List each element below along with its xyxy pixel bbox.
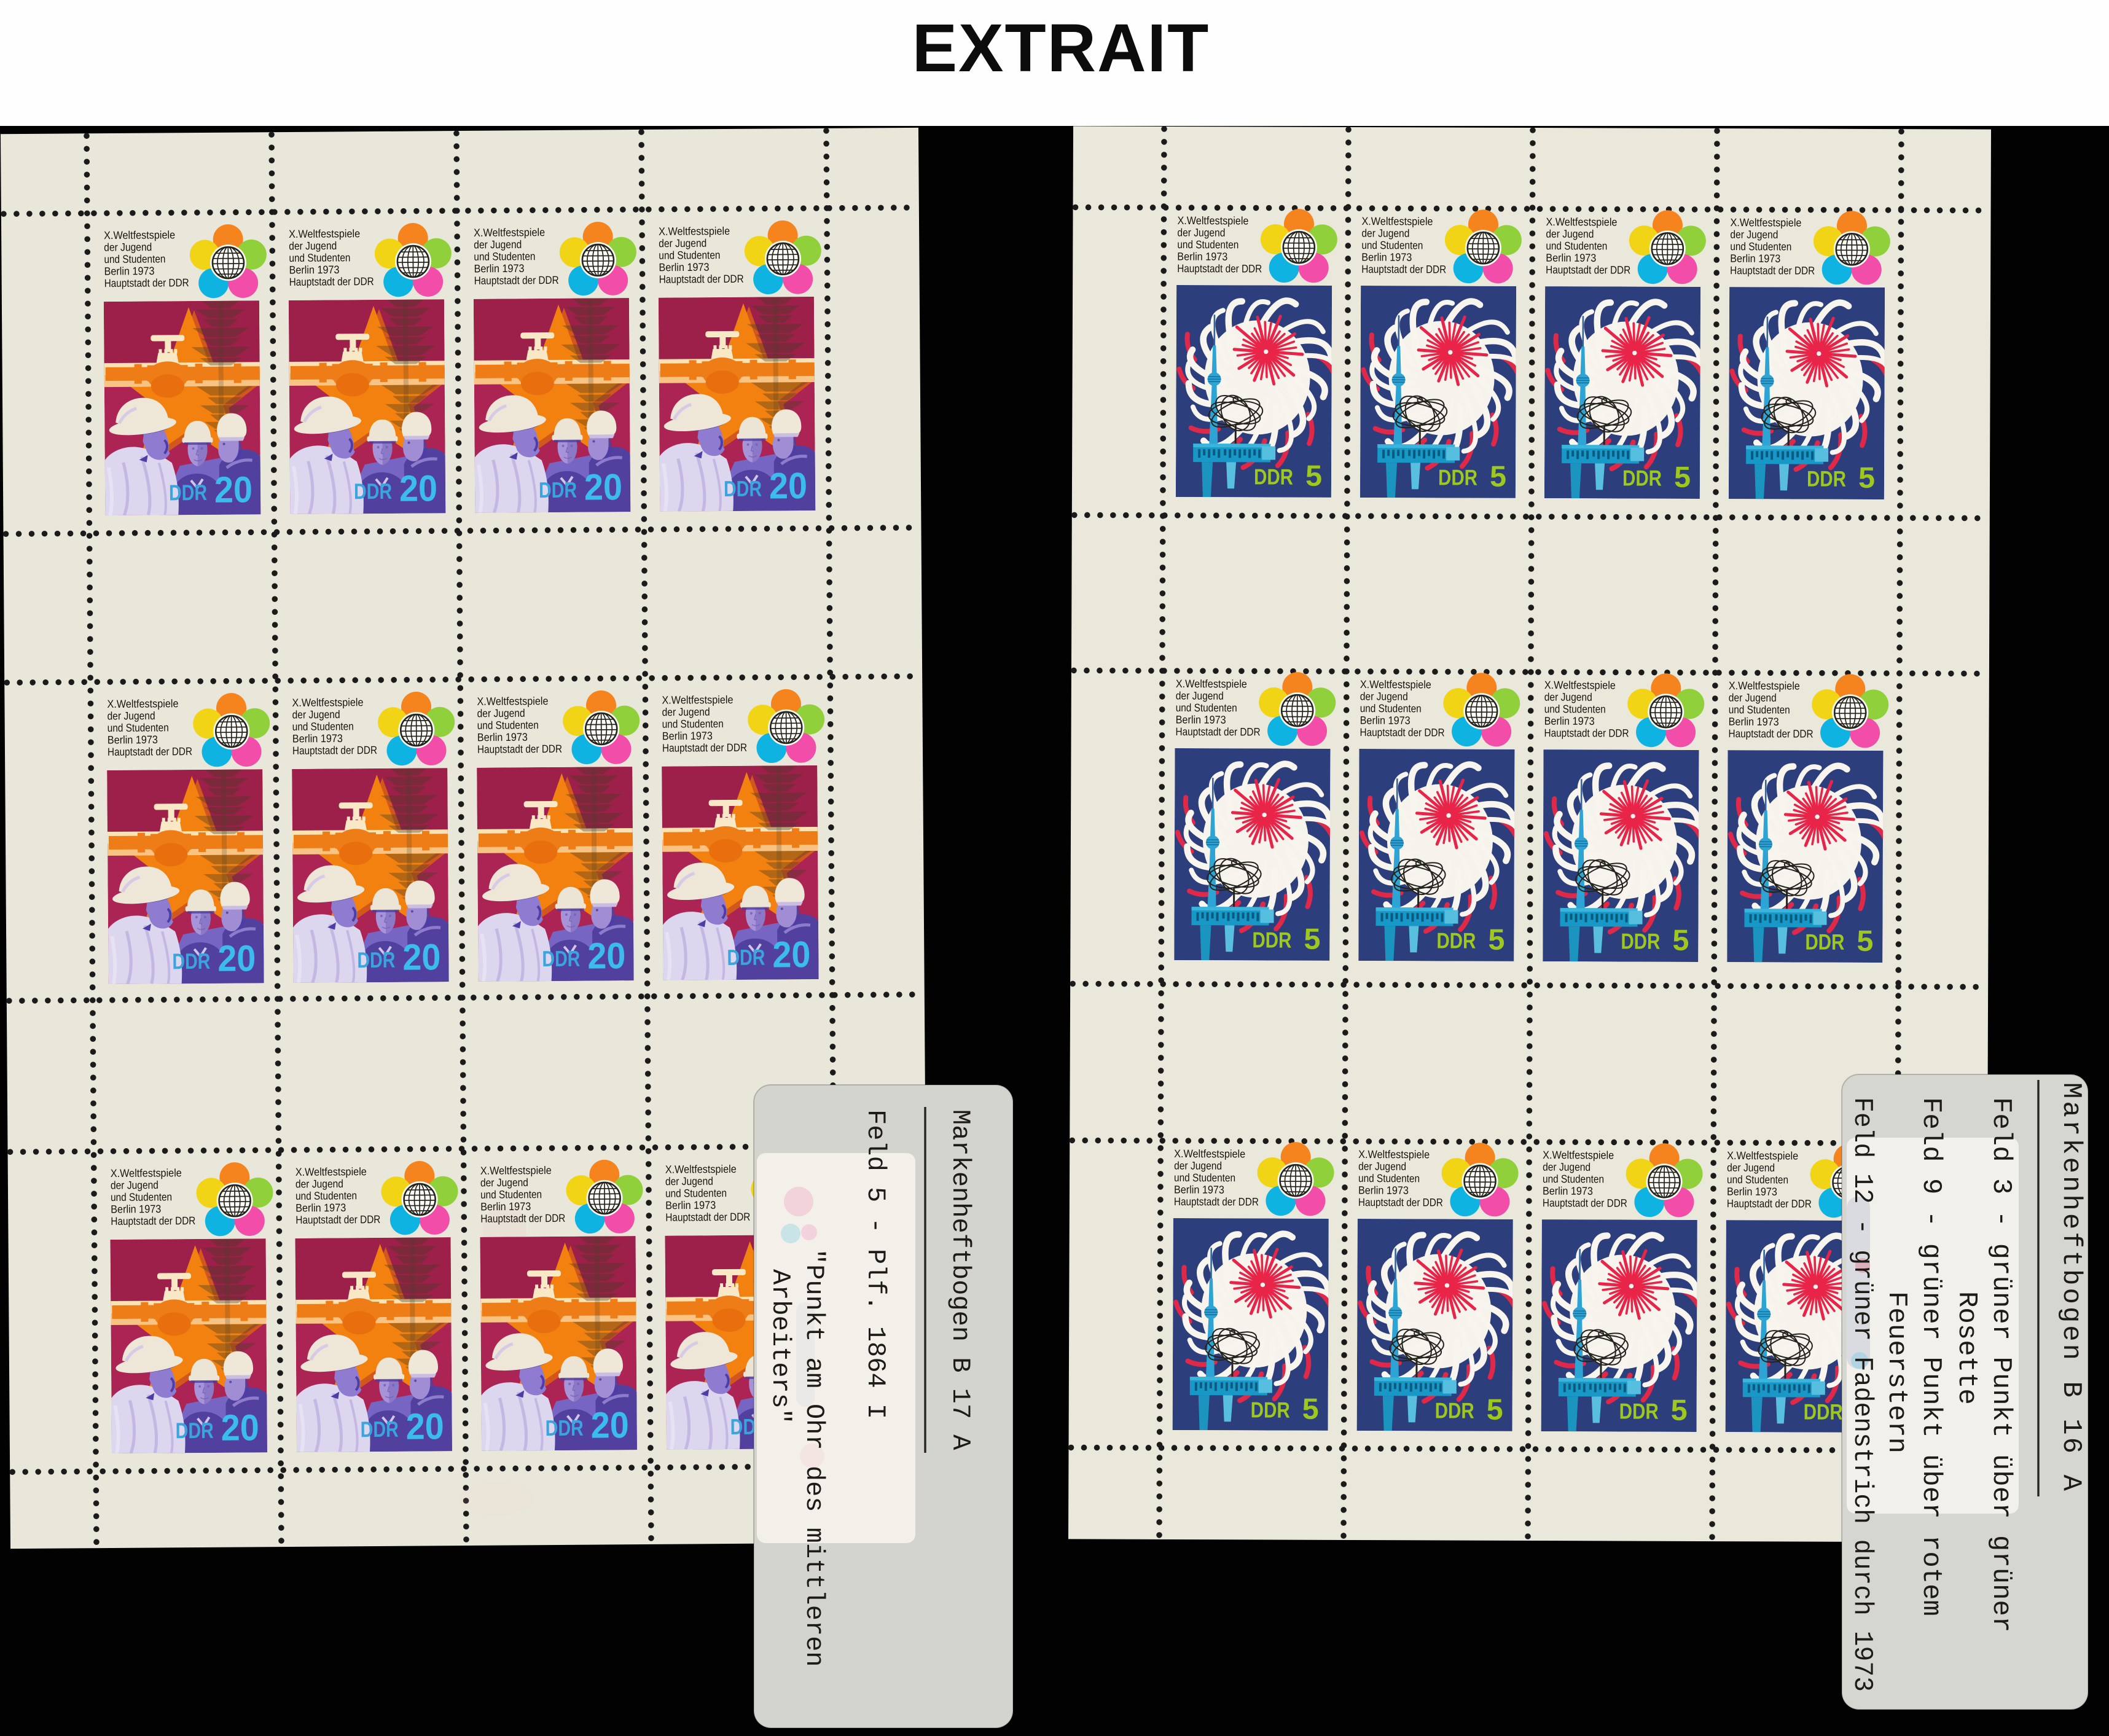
svg-text:Rosette: Rosette	[1951, 1291, 1982, 1405]
svg-text:Markenheftbogen B 16 A: Markenheftbogen B 16 A	[2056, 1082, 2086, 1493]
svg-text:Arbeiters": Arbeiters"	[765, 1269, 795, 1424]
svg-text:Feuerstern: Feuerstern	[1881, 1291, 1912, 1453]
svg-text:"Punkt am Ohr des mittleren: "Punkt am Ohr des mittleren	[799, 1249, 829, 1667]
svg-text:Feld 9 - grüner Punkt über ro: Feld 9 - grüner Punkt über rotem	[1915, 1097, 1946, 1616]
svg-text:Feld 12 - grüner Fadenstrich d: Feld 12 - grüner Fadenstrich durch 1973	[1847, 1097, 1877, 1692]
svg-text:Markenheftbogen B 17 A: Markenheftbogen B 17 A	[945, 1109, 975, 1450]
svg-text:Feld 3 - grüner Punkt über gr: Feld 3 - grüner Punkt über grüner	[1986, 1097, 2016, 1632]
svg-text:Feld 5 - Plf. 1864 I: Feld 5 - Plf. 1864 I	[861, 1109, 890, 1419]
svg-text:EXTRAIT: EXTRAIT	[912, 10, 1210, 86]
